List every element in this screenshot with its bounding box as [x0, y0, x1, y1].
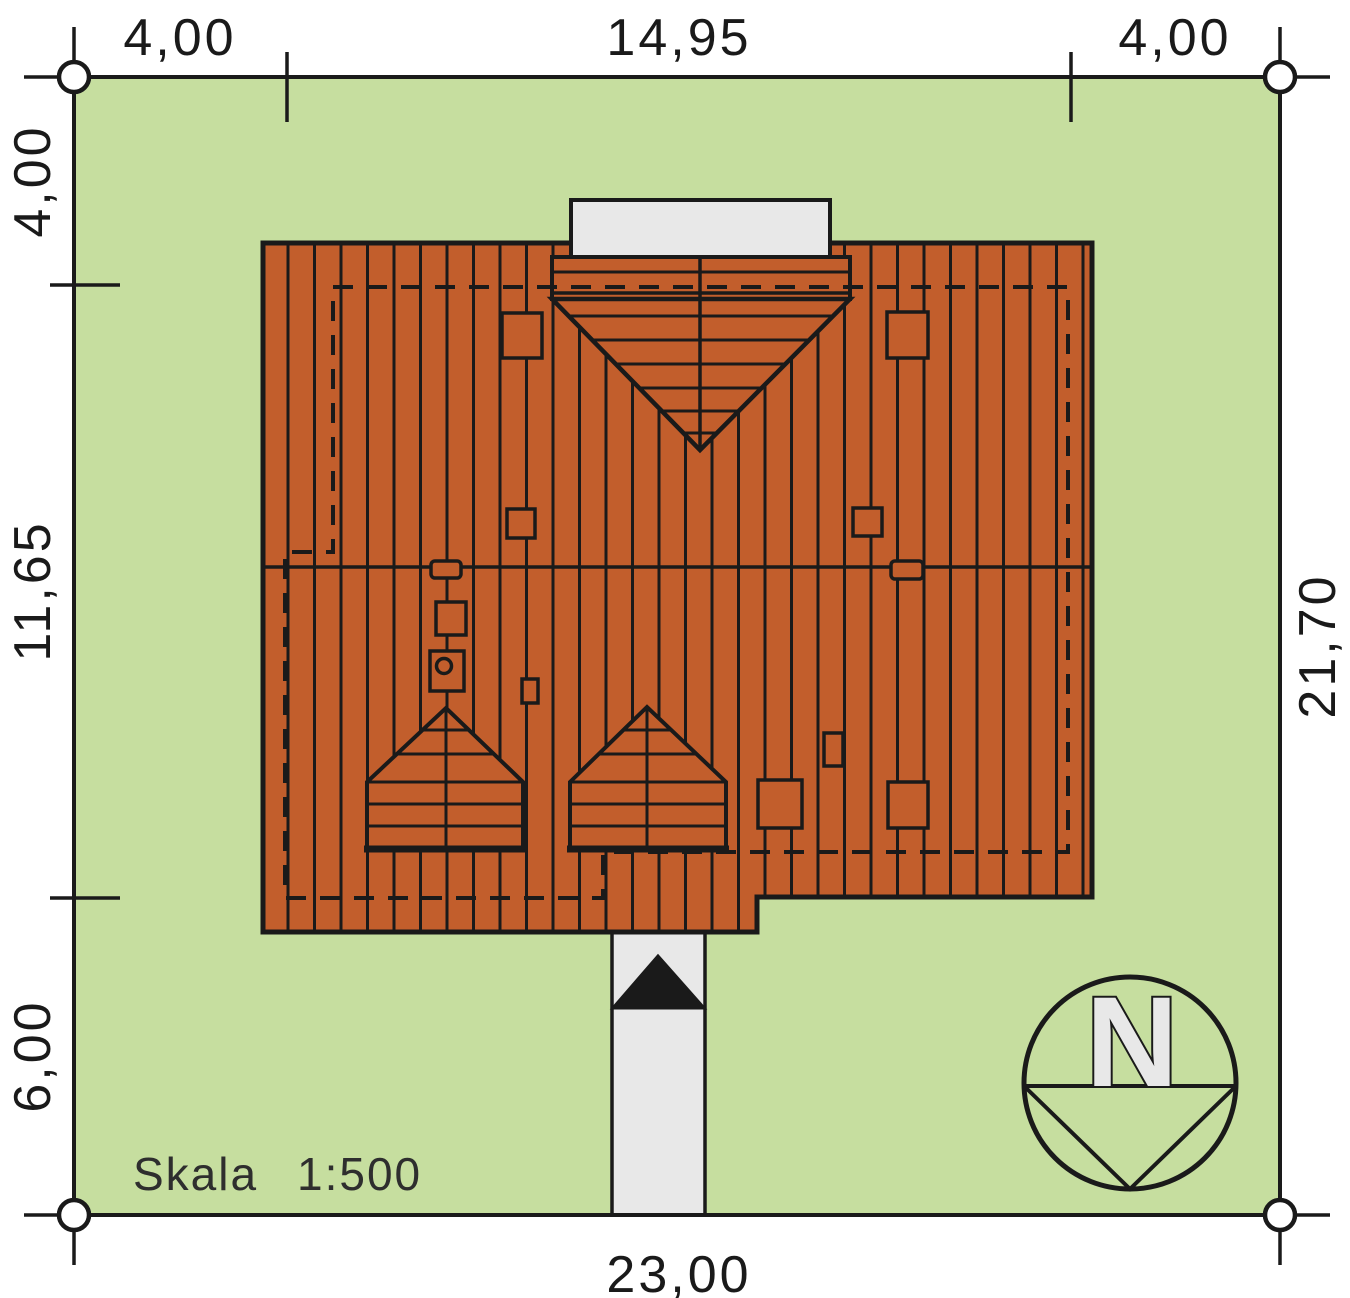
scale-label: Skala [133, 1148, 258, 1200]
dim-bottom: 23,00 [606, 1246, 751, 1298]
roof-vent [507, 509, 535, 538]
corner-marker [59, 1200, 89, 1230]
chimney-small [436, 602, 466, 635]
roof-vent [853, 508, 882, 536]
skylight [887, 312, 928, 358]
chimney-small [888, 782, 928, 828]
site-plan-drawing: N 4,00 14,95 4,00 4,00 11,65 6,00 21,70 … [0, 0, 1350, 1298]
ridge-vent [431, 561, 461, 578]
house-roof [263, 200, 1092, 932]
corner-marker [59, 62, 89, 92]
dim-right: 21,70 [1289, 573, 1347, 718]
ridge-vent [891, 561, 923, 579]
dim-left-upper: 4,00 [4, 124, 62, 237]
corner-marker [1265, 62, 1295, 92]
roof-vent [522, 679, 538, 703]
dim-left-lower: 6,00 [4, 999, 62, 1112]
dim-top-right: 4,00 [1118, 9, 1231, 67]
compass-letter: N [1086, 971, 1178, 1114]
dim-top-left: 4,00 [123, 9, 236, 67]
dim-left-middle: 11,65 [4, 520, 62, 661]
chimney-small [758, 780, 802, 828]
skylight [502, 313, 542, 358]
flue-circle [437, 659, 452, 674]
driveway [612, 932, 705, 1215]
scale-value: 1:500 [297, 1148, 422, 1200]
roof-vent [824, 733, 843, 766]
chimney-top-block [571, 200, 830, 257]
dim-top-center: 14,95 [606, 9, 751, 67]
corner-marker [1265, 1200, 1295, 1230]
site-plan-page: N 4,00 14,95 4,00 4,00 11,65 6,00 21,70 … [0, 0, 1350, 1298]
